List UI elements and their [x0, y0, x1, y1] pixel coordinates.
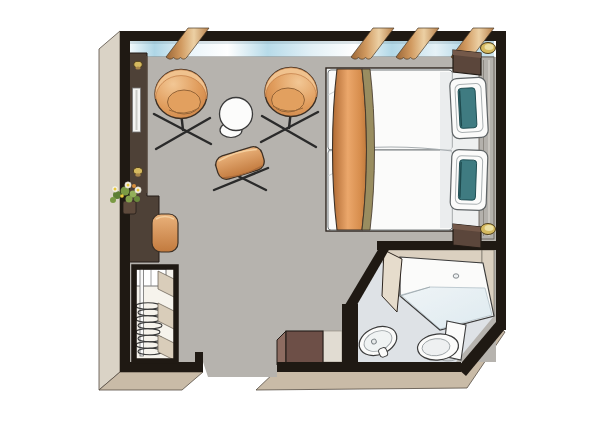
- wall-entrance-cap: [195, 352, 203, 366]
- table-lamp-top: [481, 43, 496, 54]
- daisy: [135, 187, 141, 193]
- flower-pot: [123, 201, 136, 214]
- stool: [152, 214, 178, 252]
- leaf: [134, 196, 140, 202]
- floor-entrance: [203, 362, 277, 377]
- flower-bud: [120, 194, 124, 198]
- daisy: [125, 182, 131, 188]
- wall-right: [496, 31, 506, 330]
- sleeping-area: [326, 57, 494, 239]
- pillow-top: [449, 77, 488, 139]
- flower-bud: [132, 184, 136, 188]
- wall-bottom-right: [277, 362, 461, 372]
- lamp-glow: [485, 44, 494, 50]
- leaf: [110, 197, 116, 203]
- table-lamp-bottom: [481, 224, 496, 235]
- exterior-wall-left: [99, 31, 120, 390]
- bed-runner: [333, 69, 367, 230]
- shower-drain: [453, 274, 459, 278]
- nightstand-top: [453, 50, 481, 75]
- daisy: [112, 186, 118, 192]
- floorplan-stage: [0, 0, 600, 422]
- table-top: [220, 98, 253, 131]
- wall-top: [120, 31, 506, 41]
- door-jamb-panel: [323, 331, 342, 362]
- storage-box: [286, 331, 323, 365]
- closet: [134, 267, 176, 361]
- lamp-glow: [485, 225, 494, 231]
- nightstand-bottom: [453, 224, 481, 248]
- entry-storage: [277, 331, 342, 365]
- bathroom-wall-left: [342, 304, 358, 366]
- pillow-bottom: [450, 149, 488, 210]
- leaf: [126, 196, 133, 203]
- floor-plan-canvas: [0, 0, 600, 422]
